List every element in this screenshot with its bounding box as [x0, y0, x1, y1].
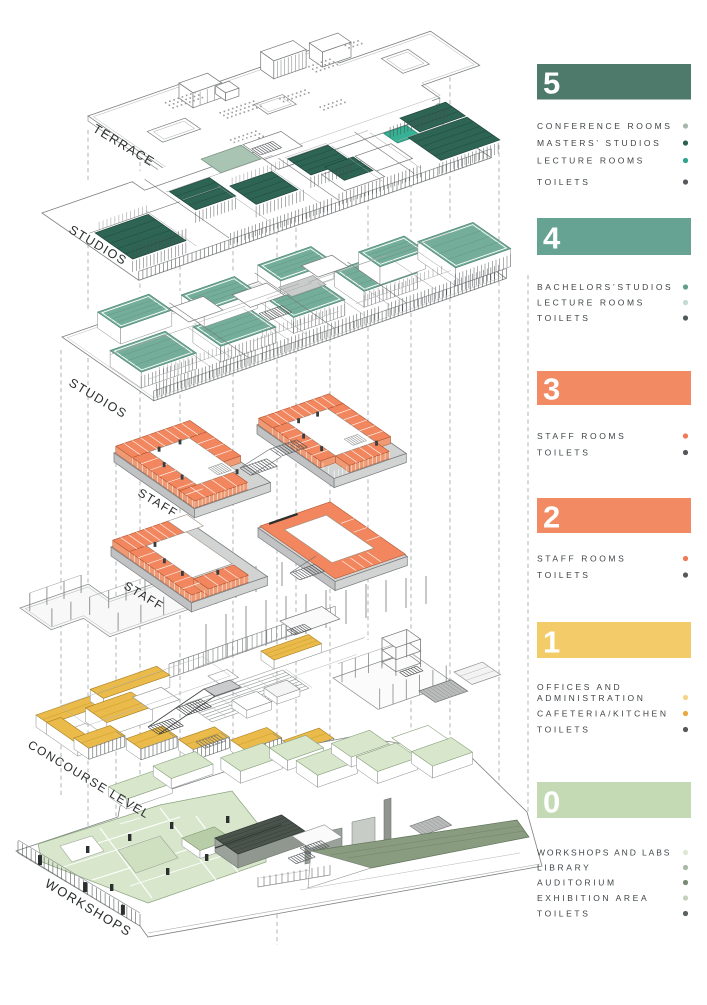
- svg-text:STUDIOS: STUDIOS: [66, 376, 129, 422]
- svg-text:EXHIBITION AREA: EXHIBITION AREA: [537, 893, 649, 903]
- svg-text:TOILETS: TOILETS: [537, 313, 590, 323]
- svg-text:TOILETS: TOILETS: [537, 909, 590, 919]
- svg-text:TOILETS: TOILETS: [537, 570, 590, 580]
- svg-text:STAFF ROOMS: STAFF ROOMS: [537, 431, 626, 441]
- svg-text:WORKSHOPS AND LABS: WORKSHOPS AND LABS: [537, 848, 671, 858]
- svg-text:0: 0: [543, 785, 560, 820]
- svg-text:OFFICES AND: OFFICES AND: [537, 682, 622, 692]
- svg-text:LECTURE ROOMS: LECTURE ROOMS: [537, 156, 645, 166]
- svg-text:TOILETS: TOILETS: [537, 725, 590, 735]
- svg-text:LECTURE ROOMS: LECTURE ROOMS: [537, 298, 645, 308]
- svg-text:TOILETS: TOILETS: [537, 448, 590, 458]
- svg-text:LIBRARY: LIBRARY: [537, 863, 591, 873]
- svg-text:STAFF ROOMS: STAFF ROOMS: [537, 554, 626, 564]
- svg-text:1: 1: [543, 625, 560, 660]
- svg-text:TOILETS: TOILETS: [537, 177, 590, 187]
- svg-text:MASTERS’ STUDIOS: MASTERS’ STUDIOS: [537, 138, 661, 148]
- svg-text:2: 2: [543, 500, 560, 535]
- svg-text:4: 4: [543, 221, 561, 256]
- svg-text:5: 5: [543, 66, 560, 101]
- svg-text:ADMINISTRATION: ADMINISTRATION: [537, 693, 646, 703]
- svg-text:AUDITORIUM: AUDITORIUM: [537, 878, 617, 888]
- svg-text:BACHELORS’STUDIOS: BACHELORS’STUDIOS: [537, 282, 673, 292]
- svg-text:CAFETERIA/KITCHEN: CAFETERIA/KITCHEN: [537, 709, 669, 719]
- svg-text:CONFERENCE ROOMS: CONFERENCE ROOMS: [537, 121, 673, 131]
- svg-text:3: 3: [543, 372, 560, 407]
